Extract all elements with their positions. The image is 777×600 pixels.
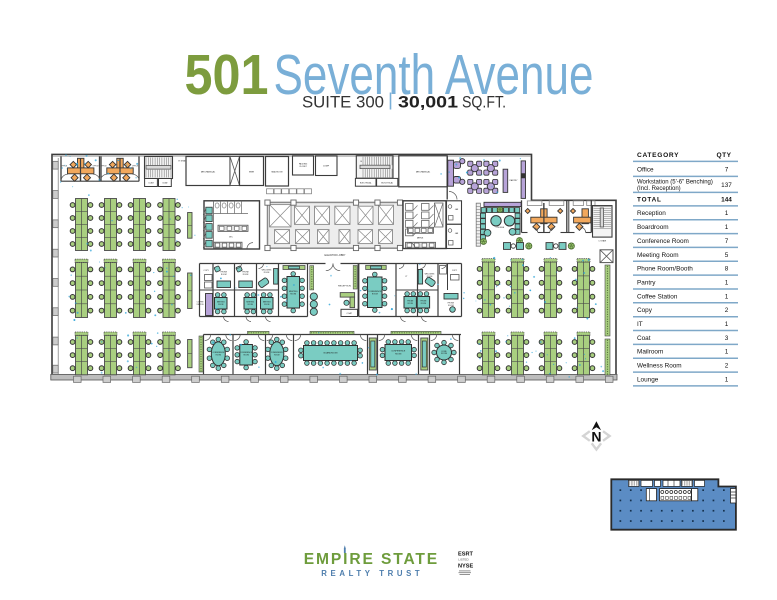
svg-text:1: 1 bbox=[725, 376, 729, 383]
svg-text:30,001: 30,001 bbox=[398, 94, 458, 112]
svg-text:IT: IT bbox=[637, 321, 643, 328]
svg-text:1: 1 bbox=[725, 293, 729, 300]
svg-text:SUITE 300: SUITE 300 bbox=[302, 94, 384, 112]
svg-text:COAT: COAT bbox=[346, 312, 352, 315]
svg-text:QTY: QTY bbox=[716, 152, 731, 159]
svg-text:OFFICE: OFFICE bbox=[61, 165, 68, 167]
svg-text:ROOM: ROOM bbox=[218, 304, 224, 306]
svg-text:ROOM: ROOM bbox=[395, 353, 402, 355]
svg-text:ELEVATOR LOBBY: ELEVATOR LOBBY bbox=[325, 254, 346, 257]
svg-text:MAILROOM: MAILROOM bbox=[272, 171, 283, 174]
svg-text:EMPIRE STATE: EMPIRE STATE bbox=[304, 551, 437, 568]
svg-text:Phone Room/Booth: Phone Room/Booth bbox=[637, 266, 693, 273]
svg-text:(Incl. Reception): (Incl. Reception) bbox=[637, 186, 681, 192]
svg-text:8: 8 bbox=[725, 266, 729, 273]
svg-text:Meeting Room: Meeting Room bbox=[637, 252, 679, 259]
svg-text:N: N bbox=[591, 428, 601, 444]
svg-text:Coffee Station: Coffee Station bbox=[637, 293, 678, 300]
svg-text:COAT: COAT bbox=[162, 182, 168, 185]
svg-text:COMP: COMP bbox=[323, 166, 330, 168]
svg-text:ROOM: ROOM bbox=[372, 293, 378, 295]
svg-text:ROOM: ROOM bbox=[441, 353, 447, 355]
svg-text:1: 1 bbox=[725, 224, 729, 231]
svg-text:7: 7 bbox=[725, 166, 729, 173]
svg-text:OFFICE: OFFICE bbox=[92, 165, 99, 167]
svg-text:ROOM: ROOM bbox=[248, 304, 254, 306]
svg-text:SQ.FT.: SQ.FT. bbox=[462, 94, 506, 112]
svg-text:Office: Office bbox=[637, 166, 654, 173]
svg-text:ROOM: ROOM bbox=[421, 303, 427, 305]
svg-text:ELECTRICAL: ELECTRICAL bbox=[360, 181, 372, 184]
svg-text:Wellness Room: Wellness Room bbox=[637, 363, 682, 370]
svg-text:Lounge: Lounge bbox=[637, 376, 659, 383]
svg-text:STATION: STATION bbox=[196, 303, 204, 306]
svg-text:3: 3 bbox=[725, 335, 729, 342]
svg-text:7: 7 bbox=[725, 238, 729, 245]
svg-text:COAT: COAT bbox=[148, 182, 154, 185]
svg-text:ROOM: ROOM bbox=[243, 354, 249, 356]
svg-text:ROOM: ROOM bbox=[264, 272, 270, 274]
svg-text:C STAIR: C STAIR bbox=[598, 240, 606, 243]
svg-text:ELECTRICAL: ELECTRICAL bbox=[381, 181, 393, 184]
svg-text:COPY: COPY bbox=[204, 270, 210, 272]
svg-text:MECHANICAL: MECHANICAL bbox=[201, 171, 216, 174]
svg-text:1: 1 bbox=[725, 279, 729, 286]
svg-text:Conference Room: Conference Room bbox=[637, 238, 689, 245]
svg-text:EMR: EMR bbox=[249, 172, 254, 174]
svg-text:137: 137 bbox=[721, 182, 732, 189]
svg-text:5: 5 bbox=[725, 252, 729, 259]
svg-text:Reception: Reception bbox=[637, 210, 666, 217]
svg-text:LISTED: LISTED bbox=[458, 558, 469, 562]
svg-text:ROOM: ROOM bbox=[221, 274, 227, 276]
svg-text:OFFICE: OFFICE bbox=[100, 165, 107, 167]
svg-text:CONFERENCE: CONFERENCE bbox=[391, 351, 406, 353]
svg-text:ROOM: ROOM bbox=[243, 274, 249, 276]
svg-text:PANTRY: PANTRY bbox=[510, 179, 519, 182]
svg-text:Coat: Coat bbox=[637, 335, 651, 342]
svg-text:CLOSET: CLOSET bbox=[299, 166, 307, 168]
svg-text:ROOM: ROOM bbox=[264, 304, 270, 306]
svg-text:ROOM: ROOM bbox=[290, 293, 296, 295]
svg-text:OFFICE: OFFICE bbox=[132, 165, 139, 167]
svg-text:ESRT: ESRT bbox=[458, 552, 474, 558]
svg-text:1: 1 bbox=[725, 321, 729, 328]
svg-text:2: 2 bbox=[725, 307, 729, 314]
svg-text:LOUNGE: LOUNGE bbox=[496, 227, 505, 229]
svg-text:WC: WC bbox=[229, 237, 233, 239]
svg-text:BOARDROOM: BOARDROOM bbox=[324, 352, 338, 355]
svg-text:Boardroom: Boardroom bbox=[637, 224, 669, 231]
svg-text:MECHANICAL: MECHANICAL bbox=[416, 171, 431, 174]
svg-text:COPY: COPY bbox=[452, 270, 458, 272]
svg-text:Copy: Copy bbox=[637, 307, 653, 314]
svg-text:NYSE: NYSE bbox=[458, 564, 474, 570]
svg-text:Mailroom: Mailroom bbox=[637, 349, 663, 356]
svg-text:Pantry: Pantry bbox=[637, 279, 656, 286]
svg-text:501: 501 bbox=[185, 43, 269, 106]
svg-text:ROOM: ROOM bbox=[216, 354, 222, 356]
svg-text:144: 144 bbox=[721, 197, 732, 204]
svg-text:MENS: MENS bbox=[417, 238, 424, 240]
svg-text:1: 1 bbox=[725, 349, 729, 356]
svg-text:RECEPTION: RECEPTION bbox=[338, 286, 351, 288]
svg-text:1: 1 bbox=[725, 210, 729, 217]
svg-text:2: 2 bbox=[725, 363, 729, 370]
svg-text:ROOM: ROOM bbox=[274, 354, 280, 356]
svg-text:ROOM: ROOM bbox=[408, 303, 414, 305]
svg-text:REALTY TRUST: REALTY TRUST bbox=[321, 569, 420, 578]
svg-text:Workstation (5'-6" Benching): Workstation (5'-6" Benching) bbox=[637, 180, 713, 186]
svg-text:TOTAL: TOTAL bbox=[637, 197, 662, 204]
svg-text:CATEGORY: CATEGORY bbox=[637, 152, 679, 159]
